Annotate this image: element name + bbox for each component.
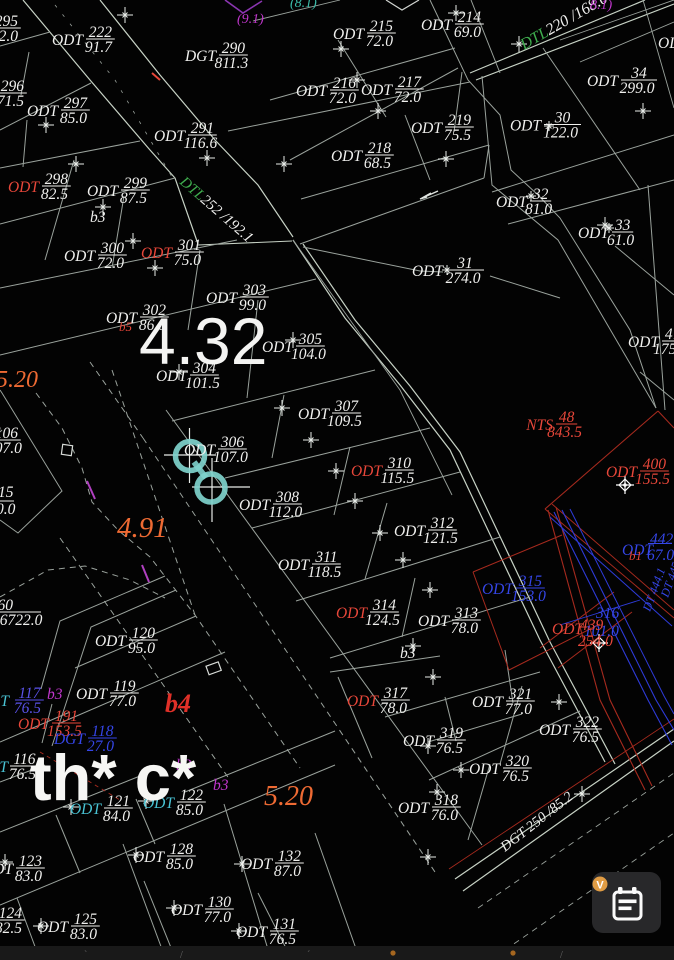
svg-text:72.0: 72.0 [329, 90, 356, 107]
svg-text:ODT: ODT [0, 861, 14, 878]
svg-text:ODT: ODT [421, 17, 453, 34]
svg-text:ODT: ODT [472, 694, 504, 711]
svg-text:82.5: 82.5 [41, 186, 68, 203]
svg-text:ODT: ODT [336, 605, 368, 622]
svg-text:85.0: 85.0 [60, 110, 87, 127]
svg-text:76.5: 76.5 [572, 729, 599, 746]
svg-text:ODT: ODT [331, 148, 363, 165]
svg-text:ODT: ODT [482, 581, 514, 598]
svg-text:b3: b3 [213, 777, 229, 794]
svg-text:(9.1): (9.1) [237, 12, 264, 27]
svg-text:DGT: DGT [184, 48, 217, 65]
svg-text:ODT: ODT [412, 263, 444, 280]
svg-text:254.0: 254.0 [578, 633, 613, 650]
svg-text:87.0: 87.0 [274, 863, 301, 880]
svg-text:91.7: 91.7 [85, 39, 113, 56]
svg-text:153.0: 153.0 [511, 588, 546, 605]
svg-text:b3: b3 [400, 645, 416, 662]
svg-text:ODT: ODT [606, 464, 638, 481]
svg-text:811.3: 811.3 [215, 55, 249, 72]
svg-text:b3: b3 [90, 209, 106, 226]
svg-text:155.5: 155.5 [635, 471, 670, 488]
svg-text:112.0: 112.0 [269, 504, 303, 521]
svg-text:ODT: ODT [8, 179, 40, 196]
svg-text:122.0: 122.0 [543, 125, 578, 142]
svg-text:72.0: 72.0 [0, 28, 18, 45]
svg-text:th* c*: th* c* [30, 741, 197, 814]
svg-text:72.0: 72.0 [366, 33, 393, 50]
svg-text:b3: b3 [47, 686, 63, 703]
svg-text:/: / [560, 950, 563, 960]
svg-text:ODT: ODT [578, 225, 610, 242]
svg-text:5.20: 5.20 [264, 781, 313, 812]
svg-text:ODT: ODT [411, 120, 443, 137]
svg-text:115.5: 115.5 [381, 470, 415, 487]
svg-text:107.0: 107.0 [213, 449, 248, 466]
svg-text:ODT: ODT [95, 633, 127, 650]
svg-text:72.0: 72.0 [394, 89, 421, 106]
svg-text:ODT: ODT [239, 497, 271, 514]
svg-text:104.0: 104.0 [291, 346, 326, 363]
svg-text:ODT: ODT [236, 924, 268, 941]
svg-text:77.0: 77.0 [505, 701, 532, 718]
svg-text:78.0: 78.0 [380, 700, 407, 717]
svg-text:ODT: ODT [0, 759, 9, 776]
svg-text:ODT: ODT [361, 82, 393, 99]
svg-text:ODT: ODT [171, 902, 203, 919]
svg-text:82.5: 82.5 [0, 920, 22, 937]
svg-text:OD: OD [658, 35, 674, 52]
svg-text:109.5: 109.5 [327, 413, 362, 430]
svg-text:/: / [180, 950, 183, 960]
svg-text:ODT: ODT [394, 523, 426, 540]
svg-text:69.0: 69.0 [454, 24, 481, 41]
svg-text:4.91: 4.91 [117, 512, 168, 544]
svg-text:ODT: ODT [154, 128, 186, 145]
svg-text:ODT: ODT [333, 26, 365, 43]
svg-text:76.5: 76.5 [269, 931, 296, 948]
svg-text:15: 15 [0, 484, 14, 501]
svg-text:ODT: ODT [298, 406, 330, 423]
svg-text:71.5: 71.5 [0, 93, 24, 110]
svg-text:77.0: 77.0 [109, 693, 136, 710]
svg-text:ODT: ODT [278, 557, 310, 574]
svg-text:ODT: ODT [133, 849, 165, 866]
svg-text:8.1): 8.1) [590, 0, 613, 13]
svg-text:ODT: ODT [76, 686, 108, 703]
svg-text:107.0: 107.0 [0, 440, 22, 457]
svg-text:ODT: ODT [184, 442, 216, 459]
svg-text:`: ` [84, 950, 87, 960]
svg-text:81.0: 81.0 [525, 201, 552, 218]
svg-text:ODT: ODT [510, 118, 542, 135]
svg-text:4.32: 4.32 [139, 304, 267, 378]
svg-text:ODT: ODT [469, 761, 501, 778]
svg-text:68.5: 68.5 [364, 155, 391, 172]
svg-text:78.0: 78.0 [451, 620, 478, 637]
svg-text:ODT: ODT [241, 856, 273, 873]
svg-text:124.5: 124.5 [365, 612, 400, 629]
svg-text:NTS: NTS [525, 417, 553, 434]
svg-text:ODT: ODT [351, 463, 383, 480]
svg-text:76.5: 76.5 [14, 700, 41, 717]
svg-text:72.0: 72.0 [97, 255, 124, 272]
svg-text:87.5: 87.5 [120, 190, 147, 207]
svg-text:116.6: 116.6 [184, 135, 218, 152]
svg-text:ODT: ODT [628, 334, 660, 351]
svg-text:ODT: ODT [141, 245, 173, 262]
svg-text:ODT: ODT [539, 722, 571, 739]
svg-text:ODT: ODT [64, 248, 96, 265]
svg-text:95.0: 95.0 [128, 640, 155, 657]
svg-text:ODT: ODT [398, 800, 430, 817]
svg-text:274.0: 274.0 [446, 270, 481, 287]
svg-text:83.0: 83.0 [70, 926, 97, 943]
svg-text:ODT: ODT [37, 919, 69, 936]
svg-text:ODT: ODT [587, 73, 619, 90]
svg-text:´: ´ [307, 950, 310, 960]
svg-text:121.5: 121.5 [423, 530, 458, 547]
svg-text:0.0: 0.0 [0, 501, 16, 518]
svg-text:ODT: ODT [347, 693, 379, 710]
svg-text:85.0: 85.0 [166, 856, 193, 873]
svg-text:76.5: 76.5 [502, 768, 529, 785]
svg-text:77.0: 77.0 [204, 909, 231, 926]
svg-text:61.0: 61.0 [607, 232, 634, 249]
svg-text:118.5: 118.5 [308, 564, 342, 581]
svg-text:b5: b5 [119, 319, 133, 334]
svg-text:ODT: ODT [0, 693, 10, 710]
svg-text:ODT: ODT [418, 613, 450, 630]
svg-text:ODT: ODT [27, 103, 59, 120]
svg-text:(8.1): (8.1) [290, 0, 317, 11]
svg-text:299.0: 299.0 [620, 80, 655, 97]
svg-text:75.5: 75.5 [444, 127, 471, 144]
svg-text:ODT: ODT [403, 733, 435, 750]
svg-text:b1: b1 [629, 548, 642, 563]
svg-text:V: V [596, 880, 604, 892]
svg-text:ODT: ODT [52, 32, 84, 49]
svg-text:75.0: 75.0 [174, 252, 201, 269]
svg-text:ODT: ODT [87, 183, 119, 200]
svg-text:439: 439 [580, 617, 604, 634]
svg-text:76.0: 76.0 [431, 807, 458, 824]
svg-text:5.20: 5.20 [0, 367, 38, 393]
svg-text:b4: b4 [165, 689, 191, 718]
svg-text:ODT: ODT [18, 716, 50, 733]
svg-text:ODT: ODT [496, 194, 528, 211]
svg-text:6722.0: 6722.0 [0, 612, 43, 629]
svg-text:83.0: 83.0 [15, 868, 42, 885]
svg-text:442: 442 [650, 531, 674, 548]
svg-text:76.5: 76.5 [436, 740, 463, 757]
svg-text:ODT: ODT [296, 83, 328, 100]
